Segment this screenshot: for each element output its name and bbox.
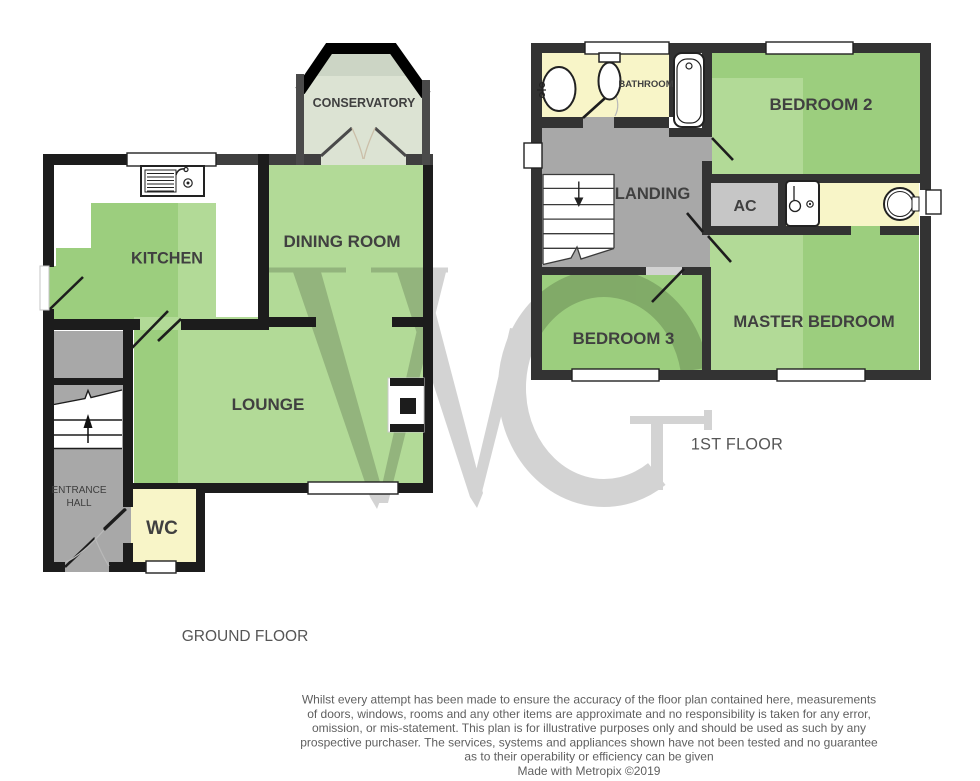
svg-text:DINING ROOM: DINING ROOM	[283, 232, 400, 251]
svg-text:LOUNGE: LOUNGE	[232, 395, 305, 414]
svg-text:BATHROOM: BATHROOM	[618, 79, 673, 90]
svg-text:CONSERVATORY: CONSERVATORY	[313, 96, 416, 110]
svg-text:LANDING: LANDING	[615, 184, 691, 203]
svg-text:ENTRANCE: ENTRANCE	[51, 485, 106, 496]
svg-text:BEDROOM 3: BEDROOM 3	[573, 329, 675, 348]
svg-text:omission, or mis-statement. Th: omission, or mis-statement. This plan is…	[312, 721, 866, 735]
svg-text:WC: WC	[146, 518, 178, 539]
svg-text:Made with Metropix ©2019: Made with Metropix ©2019	[518, 764, 661, 778]
svg-text:of doors, windows, rooms and a: of doors, windows, rooms and any other i…	[307, 707, 871, 721]
svg-text:prospective purchaser. The ser: prospective purchaser. The services, sys…	[300, 735, 878, 749]
svg-text:HALL: HALL	[66, 498, 91, 509]
svg-text:KITCHEN: KITCHEN	[131, 250, 203, 268]
svg-text:as to their operability or eff: as to their operability or efficiency ca…	[464, 750, 713, 764]
svg-text:MASTER BEDROOM: MASTER BEDROOM	[733, 312, 894, 331]
svg-text:BEDROOM 2: BEDROOM 2	[770, 95, 873, 114]
svg-text:1ST FLOOR: 1ST FLOOR	[691, 436, 783, 454]
svg-text:Whilst every attempt has been: Whilst every attempt has been made to en…	[302, 693, 876, 707]
svg-text:GROUND FLOOR: GROUND FLOOR	[182, 628, 309, 645]
svg-text:AC: AC	[733, 198, 757, 215]
